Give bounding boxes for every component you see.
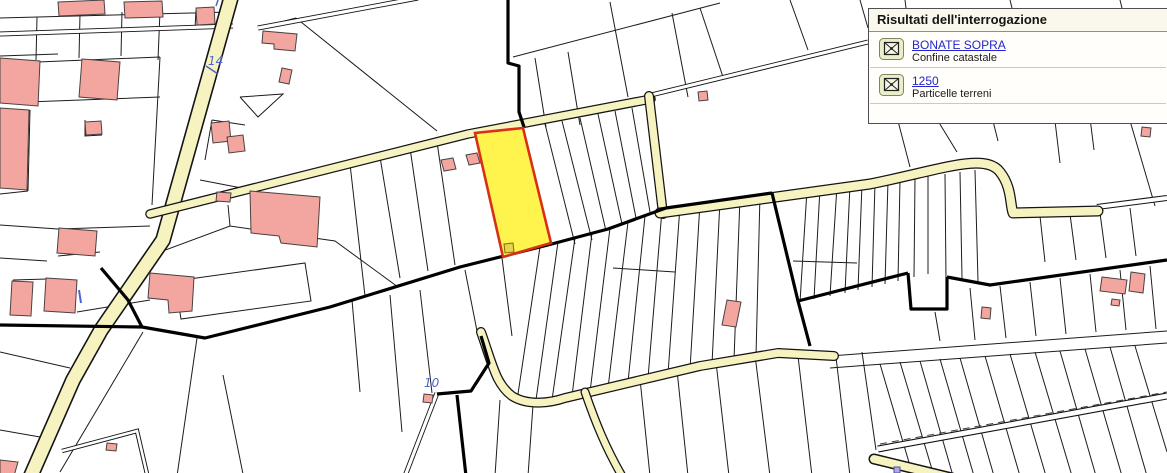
parcel-small-building bbox=[504, 243, 514, 253]
blue-square-mark bbox=[894, 467, 900, 473]
result-sublabel: Confine catastale bbox=[912, 52, 1006, 65]
result-link[interactable]: BONATE SOPRA bbox=[912, 38, 1006, 52]
map-label-14: 14 bbox=[208, 54, 223, 68]
gis-map-viewer: 14 10 Risultati dell'interrogazione BONA… bbox=[0, 0, 1167, 473]
result-link[interactable]: 1250 bbox=[912, 74, 991, 88]
query-results-panel: Risultati dell'interrogazione BONATE SOP… bbox=[868, 8, 1167, 124]
blue-tick-mark bbox=[79, 290, 81, 303]
result-sublabel: Particelle terreni bbox=[912, 88, 991, 101]
locate-result-icon[interactable] bbox=[879, 74, 904, 96]
result-item: 1250 Particelle terreni bbox=[870, 68, 1166, 104]
highlighted-parcel[interactable] bbox=[475, 128, 551, 257]
locate-result-icon[interactable] bbox=[879, 38, 904, 60]
map-label-10: 10 bbox=[424, 376, 440, 390]
panel-title: Risultati dell'interrogazione bbox=[869, 9, 1167, 32]
result-item: BONATE SOPRA Confine catastale bbox=[870, 32, 1166, 68]
blue-tick-mark-top bbox=[216, 0, 218, 6]
